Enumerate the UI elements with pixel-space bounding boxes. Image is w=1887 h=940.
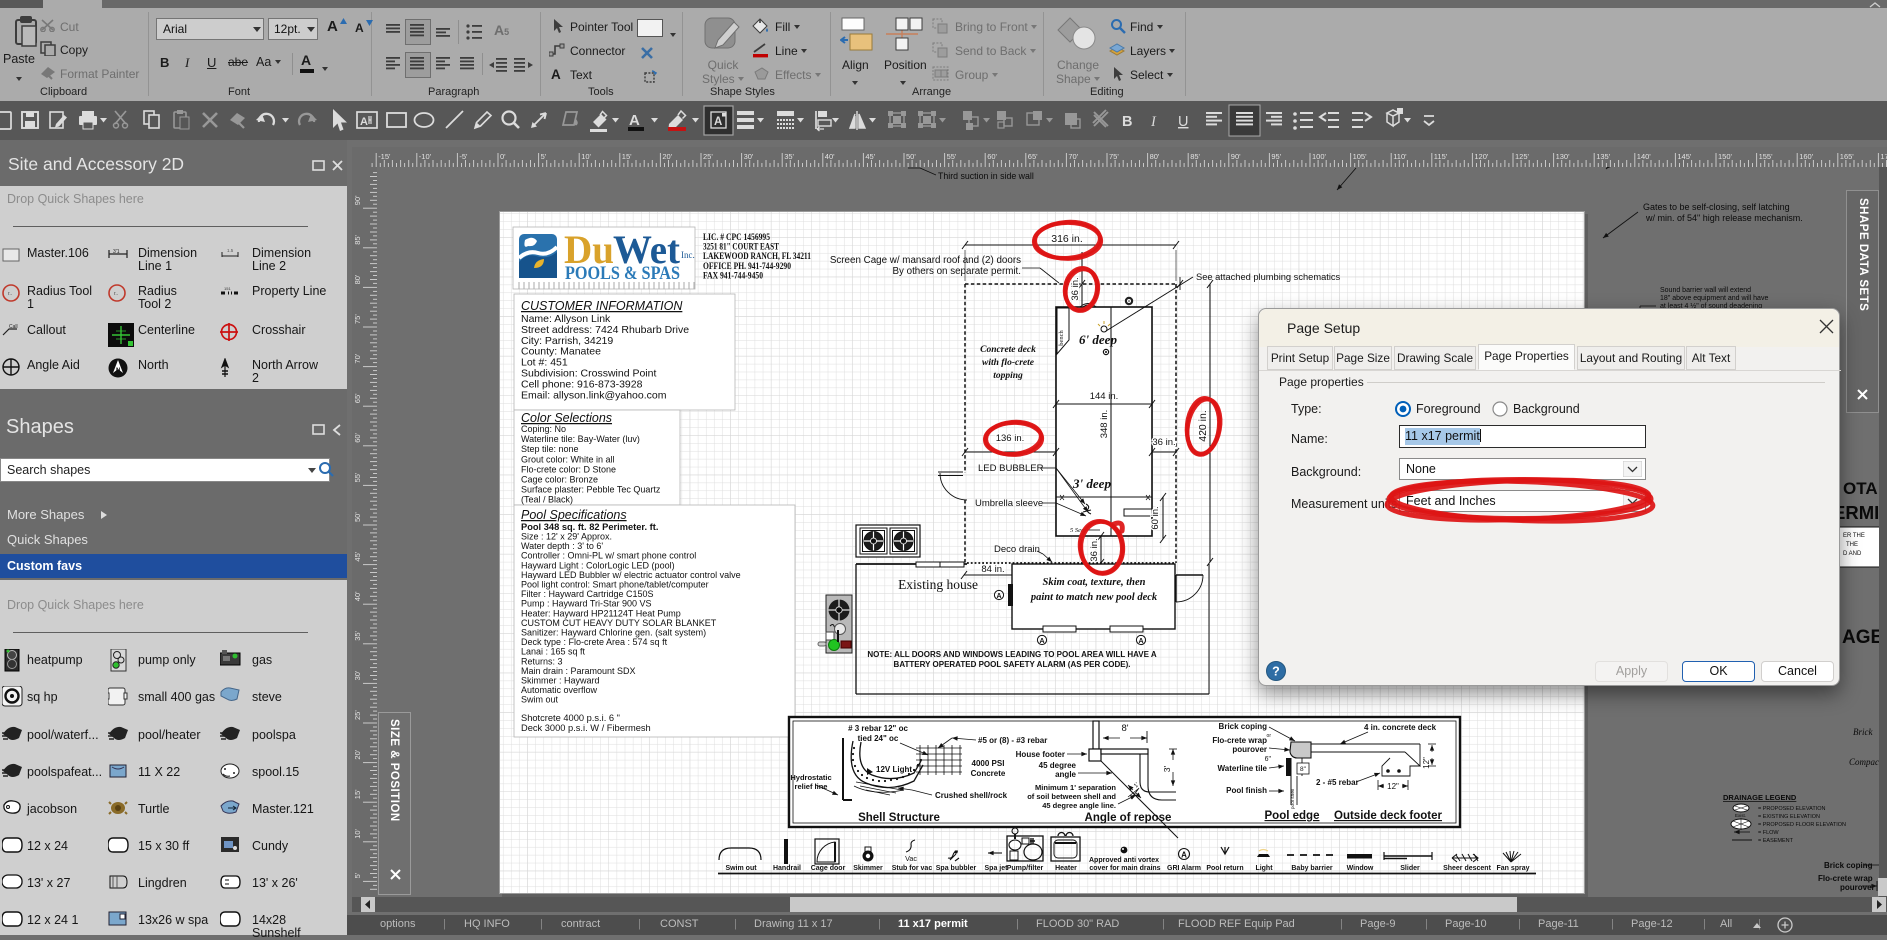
svg-text:8": 8" bbox=[1300, 766, 1307, 773]
svg-text:Exist.: Exist. bbox=[1735, 813, 1746, 818]
svg-text:15': 15' bbox=[622, 152, 632, 161]
svg-text:Pool 348 sq. ft. 82 Perime: Pool 348 sq. ft. 82 Perimeter. ft. bbox=[521, 522, 658, 532]
svg-text:Flo-crete wrap: Flo-crete wrap bbox=[1212, 736, 1267, 745]
svg-text:Heater: Heater bbox=[1055, 865, 1077, 872]
svg-text:Approved anti vortex: Approved anti vortex bbox=[1089, 857, 1159, 864]
svg-text:85': 85' bbox=[353, 234, 362, 244]
svg-text:CUSTOMER INFORMATION: CUSTOMER INFORMATION bbox=[521, 299, 683, 313]
svg-text:Pump/filter: Pump/filter bbox=[1007, 865, 1044, 872]
svg-text:40': 40' bbox=[353, 591, 362, 601]
svg-text:Automatic overflow: Automatic overflow bbox=[521, 685, 598, 695]
svg-text:Baby barrier: Baby barrier bbox=[1291, 865, 1333, 872]
svg-text:OFFICE PH. 941-744-9290: OFFICE PH. 941-744-9290 bbox=[703, 261, 791, 271]
svg-text:Coping: No: Coping: No bbox=[521, 424, 566, 434]
svg-text:bench: bench bbox=[1058, 329, 1065, 345]
svg-text:or: or bbox=[1267, 733, 1272, 739]
svg-text:B: B bbox=[1122, 114, 1132, 130]
svg-text:Vac: Vac bbox=[905, 854, 917, 863]
svg-text:60': 60' bbox=[353, 432, 362, 442]
svg-text:10': 10' bbox=[353, 828, 362, 838]
svg-text:Pool light control: Smart phon: Pool light control: Smart phone/tablet/c… bbox=[521, 580, 709, 590]
svg-text:OTA: OTA bbox=[1843, 479, 1878, 498]
svg-text:135': 135' bbox=[1596, 152, 1611, 161]
svg-text:150': 150' bbox=[1718, 152, 1733, 161]
svg-text:Lanai : 165 sq ft: Lanai : 165 sq ft bbox=[521, 647, 586, 657]
svg-text:115': 115' bbox=[1434, 152, 1448, 161]
svg-text:ER THE: ER THE bbox=[1843, 533, 1865, 539]
svg-text:50': 50' bbox=[906, 152, 916, 161]
svg-text:A: A bbox=[1138, 638, 1143, 645]
svg-text:Angle of repose: Angle of repose bbox=[1085, 812, 1172, 824]
svg-text:= EASEMENT: = EASEMENT bbox=[1758, 838, 1794, 844]
svg-text:4 in. concrete deck: 4 in. concrete deck bbox=[1364, 723, 1437, 732]
svg-text:15': 15' bbox=[353, 789, 362, 799]
svg-text:Hydrostatic: Hydrostatic bbox=[790, 773, 831, 782]
svg-text:4000 PSI: 4000 PSI bbox=[972, 759, 1005, 768]
svg-text:3251 81" COURT EAST: 3251 81" COURT EAST bbox=[703, 242, 779, 252]
svg-text:Controller : Omni-PL w/ smart: Controller : Omni-PL w/ smart phone cont… bbox=[521, 551, 696, 561]
svg-text:Brick coping: Brick coping bbox=[1219, 722, 1268, 731]
svg-text:80': 80' bbox=[1150, 152, 1160, 161]
svg-text:Flo-crete color: D Stone: Flo-crete color: D Stone bbox=[521, 464, 616, 474]
svg-text:160': 160' bbox=[1799, 152, 1814, 161]
svg-text:relief line: relief line bbox=[795, 782, 828, 791]
svg-text:10': 10' bbox=[581, 152, 591, 161]
svg-text:LIC. # CPC 1456995: LIC. # CPC 1456995 bbox=[703, 232, 770, 242]
svg-text:paint to match new pool deck: paint to match new pool deck bbox=[1030, 592, 1158, 603]
svg-text:Skimmer : Hayward: Skimmer : Hayward bbox=[521, 676, 600, 686]
svg-text:30': 30' bbox=[353, 670, 362, 680]
svg-text:90': 90' bbox=[1231, 152, 1241, 161]
svg-text:25': 25' bbox=[703, 152, 713, 161]
svg-text:(Teal / Black): (Teal / Black) bbox=[521, 495, 573, 505]
svg-text:-15': -15' bbox=[378, 152, 391, 161]
svg-text:Returns: 3: Returns: 3 bbox=[521, 656, 563, 666]
svg-text:Gates to be self-closing, self: Gates to be self-closing, self latching bbox=[1643, 202, 1790, 212]
svg-text:A: A bbox=[714, 116, 722, 128]
svg-text:of soil between shell and: of soil between shell and bbox=[1027, 792, 1116, 801]
svg-text:95': 95' bbox=[1271, 152, 1281, 161]
svg-text:165': 165' bbox=[1840, 152, 1855, 161]
svg-text:45 degree: 45 degree bbox=[1039, 761, 1077, 770]
svg-text:60 in.: 60 in. bbox=[1150, 506, 1161, 529]
svg-text:Screen Cage w/ mansard roof an: Screen Cage w/ mansard roof and (2) door… bbox=[830, 255, 1021, 266]
svg-text:BATTERY OPERATED POOL SAFETY A: BATTERY OPERATED POOL SAFETY ALARM (AS P… bbox=[894, 660, 1131, 669]
svg-text:60': 60' bbox=[987, 152, 997, 161]
svg-text:Sanitizer: Hayward Chlorine ge: Sanitizer: Hayward Chlorine gen. (salt s… bbox=[521, 628, 706, 638]
svg-text:= PROPOSED ELEVATION: = PROPOSED ELEVATION bbox=[1758, 806, 1826, 812]
svg-text:Shell Structure: Shell Structure bbox=[858, 812, 940, 824]
svg-text:# 3 rebar 12" oc: # 3 rebar 12" oc bbox=[848, 724, 908, 733]
svg-text:84 in.: 84 in. bbox=[981, 564, 1004, 575]
svg-text:3'1: 3'1 bbox=[113, 249, 120, 255]
svg-text:Spa bubbler: Spa bubbler bbox=[936, 865, 977, 872]
svg-text:420 in.: 420 in. bbox=[1197, 410, 1209, 442]
svg-text:topping: topping bbox=[993, 371, 1023, 381]
svg-text:angle: angle bbox=[1055, 770, 1076, 779]
svg-text:45': 45' bbox=[353, 551, 362, 561]
svg-text:NOTE: ALL DOORS AND WINDOWS LE: NOTE: ALL DOORS AND WINDOWS LEADING TO P… bbox=[867, 650, 1157, 659]
svg-text:120': 120' bbox=[1474, 152, 1489, 161]
svg-text:145': 145' bbox=[1677, 152, 1692, 161]
svg-text:Sheer descent: Sheer descent bbox=[1443, 865, 1492, 872]
svg-text:55': 55' bbox=[947, 152, 957, 161]
svg-text:45 degree angle line.: 45 degree angle line. bbox=[1042, 801, 1116, 810]
svg-text:80': 80' bbox=[353, 274, 362, 284]
svg-text:Color Selections: Color Selections bbox=[521, 411, 612, 425]
svg-text:85': 85' bbox=[1190, 152, 1200, 161]
svg-text:Flo-crete wrap: Flo-crete wrap bbox=[1818, 874, 1873, 883]
svg-text:A: A bbox=[1181, 851, 1187, 860]
svg-text:70': 70' bbox=[1068, 152, 1078, 161]
svg-text:CUSTOM CUT HEAVY DUTY SOLAR BL: CUSTOM CUT HEAVY DUTY SOLAR BLANKET bbox=[521, 618, 717, 628]
svg-text:Swim out: Swim out bbox=[521, 695, 559, 705]
svg-text:Minimum 1' separation: Minimum 1' separation bbox=[1035, 783, 1116, 792]
svg-text:Brick coping: Brick coping bbox=[1824, 861, 1873, 870]
svg-text:Compac: Compac bbox=[1849, 757, 1879, 767]
svg-text:25': 25' bbox=[353, 710, 362, 720]
svg-text:Pump : Hayward Tri-Star 900 VS: Pump : Hayward Tri-Star 900 VS bbox=[521, 599, 652, 609]
svg-text:By others on separate permit.: By others on separate permit. bbox=[892, 266, 1021, 277]
svg-text:Grout color: White in all: Grout color: White in all bbox=[521, 454, 615, 464]
svg-text:45': 45' bbox=[865, 152, 875, 161]
svg-text:2 - #5 rebar: 2 - #5 rebar bbox=[1316, 778, 1359, 787]
svg-text:A: A bbox=[996, 593, 1001, 600]
svg-text:Pool return: Pool return bbox=[1206, 865, 1243, 872]
svg-text:THE: THE bbox=[1846, 542, 1858, 548]
svg-text:Filter : Hayward Cartridge C15: Filter : Hayward Cartridge C150S bbox=[521, 589, 654, 599]
svg-text:36 in.: 36 in. bbox=[1152, 437, 1175, 448]
svg-text:125': 125' bbox=[1515, 152, 1530, 161]
svg-text:DRAINAGE LEGEND: DRAINAGE LEGEND bbox=[1723, 793, 1797, 802]
svg-text:A: A bbox=[360, 116, 368, 128]
svg-text:144 in.: 144 in. bbox=[1090, 391, 1119, 402]
svg-text:155': 155' bbox=[1759, 152, 1774, 161]
svg-text:Heater: Hayward HP21124T Heat: Heater: Hayward HP21124T Heat Pump bbox=[521, 608, 681, 618]
svg-text:Surface plaster: Pebble Tec Q: Surface plaster: Pebble Tec Quartz bbox=[521, 485, 661, 495]
svg-text:8': 8' bbox=[1121, 723, 1128, 734]
svg-text:36 in.: 36 in. bbox=[1089, 538, 1100, 561]
svg-text:Spa jet: Spa jet bbox=[985, 865, 1009, 872]
svg-text:55': 55' bbox=[353, 472, 362, 482]
svg-text:POOLS & SPAS: POOLS & SPAS bbox=[565, 263, 680, 284]
svg-text:?: ? bbox=[1272, 665, 1280, 679]
svg-text:Waterline tile: Bay-Water (luv: Waterline tile: Bay-Water (luv) bbox=[521, 434, 640, 444]
svg-text:Window: Window bbox=[1347, 865, 1374, 872]
svg-text:Pool finish: Pool finish bbox=[1226, 786, 1267, 795]
svg-text:Hayward LED Bubbler w/ electri: Hayward LED Bubbler w/ electric actuator… bbox=[521, 570, 741, 580]
svg-text:Shotcrete 4000 p.s.i. 6 ": Shotcrete 4000 p.s.i. 6 " bbox=[521, 713, 620, 723]
svg-text:U: U bbox=[1178, 114, 1188, 130]
svg-text:Swim out: Swim out bbox=[725, 865, 757, 872]
svg-text:= PROPOSED FLOOR ELEVATION: = PROPOSED FLOOR ELEVATION bbox=[1758, 822, 1846, 828]
svg-text:Cage door: Cage door bbox=[811, 865, 846, 872]
svg-text:70': 70' bbox=[353, 353, 362, 363]
svg-text:N: N bbox=[116, 368, 120, 374]
svg-text:Existing house: Existing house bbox=[898, 577, 978, 592]
svg-text:Concrete deck: Concrete deck bbox=[980, 345, 1036, 355]
svg-text:pourover: pourover bbox=[1232, 745, 1267, 754]
svg-text:Step tile: none: Step tile: none bbox=[521, 444, 579, 454]
svg-text:#5 or (8) - #3 rebar: #5 or (8) - #3 rebar bbox=[978, 736, 1047, 745]
svg-text:110': 110' bbox=[1393, 152, 1407, 161]
svg-text:Cage color: Bronze: Cage color: Bronze bbox=[521, 475, 598, 485]
svg-text:pourover: pourover bbox=[1840, 883, 1875, 892]
svg-text:20': 20' bbox=[662, 152, 672, 161]
svg-text:Waterline tile: Waterline tile bbox=[1218, 764, 1268, 773]
svg-text:30': 30' bbox=[744, 152, 754, 161]
svg-text:Slider: Slider bbox=[1400, 865, 1420, 872]
svg-text:Handrail: Handrail bbox=[773, 865, 801, 872]
svg-text:D AND: D AND bbox=[1843, 551, 1862, 557]
svg-text:6' deep: 6' deep bbox=[1079, 332, 1117, 347]
svg-text:105': 105' bbox=[1353, 152, 1368, 161]
svg-text:Main drain : Paramount SDX: Main drain : Paramount SDX bbox=[521, 666, 636, 676]
svg-text:Sound barrier wall will extend: Sound barrier wall will extend bbox=[1660, 287, 1751, 294]
svg-text:-10': -10' bbox=[419, 152, 432, 161]
svg-text:Skim coat, texture, then: Skim coat, texture, then bbox=[1043, 577, 1146, 588]
svg-text:75': 75' bbox=[1109, 152, 1119, 161]
svg-text:Inc.: Inc. bbox=[681, 250, 695, 260]
svg-text:3' deep: 3' deep bbox=[1072, 476, 1111, 491]
svg-text:151: 151 bbox=[224, 286, 231, 291]
svg-text:Size : 12' x 29' Approx.: Size : 12' x 29' Approx. bbox=[521, 532, 612, 542]
svg-text:= EXISTING ELEVATION: = EXISTING ELEVATION bbox=[1758, 814, 1820, 820]
svg-text:40': 40' bbox=[825, 152, 835, 161]
svg-text:Umbrella sleeve: Umbrella sleeve bbox=[975, 498, 1043, 509]
svg-text:Fan spray: Fan spray bbox=[1496, 865, 1529, 872]
svg-text:100': 100' bbox=[1312, 152, 1327, 161]
svg-text:12": 12" bbox=[1422, 757, 1431, 769]
svg-text:316 in.: 316 in. bbox=[1051, 233, 1083, 245]
svg-text:3': 3' bbox=[1162, 765, 1172, 772]
svg-text:130': 130' bbox=[1556, 152, 1571, 161]
svg-text:65': 65' bbox=[1028, 152, 1038, 161]
svg-text:140': 140' bbox=[1637, 152, 1652, 161]
svg-text:LED BUBBLER: LED BUBBLER bbox=[978, 463, 1044, 474]
svg-text:Call: Call bbox=[9, 324, 18, 330]
svg-text:Email: allyson.link@yahoo.com: Email: allyson.link@yahoo.com bbox=[521, 389, 667, 401]
svg-text:35': 35' bbox=[353, 630, 362, 640]
svg-text:75': 75' bbox=[353, 314, 362, 324]
svg-text:tied 24" oc: tied 24" oc bbox=[858, 734, 899, 743]
svg-text:Light: Light bbox=[1255, 865, 1273, 872]
svg-text:A: A bbox=[629, 112, 640, 129]
svg-text:FAX 941-744-9450: FAX 941-744-9450 bbox=[703, 270, 763, 280]
svg-text:136 in.: 136 in. bbox=[996, 433, 1025, 444]
svg-text:Water depth : 3' to 6': Water depth : 3' to 6' bbox=[521, 541, 603, 551]
svg-text:90': 90' bbox=[353, 195, 362, 205]
svg-text:6": 6" bbox=[1265, 756, 1272, 763]
svg-text:A: A bbox=[1039, 638, 1044, 645]
svg-text:Skimmer: Skimmer bbox=[853, 865, 883, 872]
svg-text:5': 5' bbox=[541, 152, 547, 161]
svg-text:Deck type : Flo-crete Area :: Deck type : Flo-crete Area : 574 sq ft bbox=[521, 637, 668, 647]
svg-text:1.5: 1.5 bbox=[227, 248, 234, 253]
svg-text:65': 65' bbox=[353, 393, 362, 403]
svg-text:with flo-crete: with flo-crete bbox=[982, 358, 1035, 368]
svg-text:12": 12" bbox=[1387, 782, 1399, 791]
svg-text:12V Light: 12V Light bbox=[876, 765, 912, 774]
svg-text:r..: r.. bbox=[8, 291, 12, 297]
svg-text:Hayward Light : ColorLogic LED: Hayward Light : ColorLogic LED (pool) bbox=[521, 560, 675, 570]
svg-text:20': 20' bbox=[353, 749, 362, 759]
svg-text:0': 0' bbox=[500, 152, 506, 161]
svg-text:5': 5' bbox=[353, 872, 362, 878]
svg-text:GRI Alarm: GRI Alarm bbox=[1167, 865, 1201, 872]
svg-text:Third suction in side wall: Third suction in side wall bbox=[938, 171, 1034, 181]
svg-text:Concrete: Concrete bbox=[971, 769, 1006, 778]
svg-text:Deck 3000 p.s.i. W / Fiberm: Deck 3000 p.s.i. W / Fibermesh bbox=[521, 723, 651, 733]
svg-text:18" above equipment and will h: 18" above equipment and will have bbox=[1660, 295, 1768, 302]
svg-text:LAKEWOOD RANCH, FL 34211: LAKEWOOD RANCH, FL 34211 bbox=[703, 251, 811, 261]
svg-text:Pool edge: Pool edge bbox=[1265, 810, 1320, 822]
svg-text:Deco drain: Deco drain bbox=[994, 544, 1040, 555]
svg-text:36 in.: 36 in. bbox=[1070, 277, 1081, 300]
svg-text:Stub for vac: Stub for vac bbox=[892, 865, 933, 872]
svg-text:r..: r.. bbox=[114, 291, 118, 297]
svg-text:cover for main drains: cover for main drains bbox=[1089, 865, 1160, 872]
svg-text:348 in.: 348 in. bbox=[1099, 410, 1110, 439]
svg-text:Pool Specifications: Pool Specifications bbox=[521, 508, 627, 522]
svg-text:See attached plumbing schemati: See attached plumbing schematics bbox=[1196, 272, 1341, 282]
svg-text:House footer: House footer bbox=[1016, 750, 1065, 759]
svg-text:= FLOW: = FLOW bbox=[1758, 830, 1779, 836]
svg-text:pool shell: pool shell bbox=[1290, 789, 1296, 809]
svg-text:170': 170' bbox=[1880, 152, 1887, 161]
svg-text:-5': -5' bbox=[459, 152, 468, 161]
svg-text:w/ min. of 54" high release me: w/ min. of 54" high release mechanism. bbox=[1645, 213, 1803, 223]
svg-text:AGE: AGE bbox=[1842, 627, 1883, 648]
svg-text:50': 50' bbox=[353, 512, 362, 522]
svg-text:35': 35' bbox=[784, 152, 794, 161]
svg-text:Outside deck footer: Outside deck footer bbox=[1334, 810, 1443, 822]
svg-text:Brick: Brick bbox=[1853, 727, 1873, 737]
svg-text:Crushed shell/rock: Crushed shell/rock bbox=[935, 791, 1008, 800]
